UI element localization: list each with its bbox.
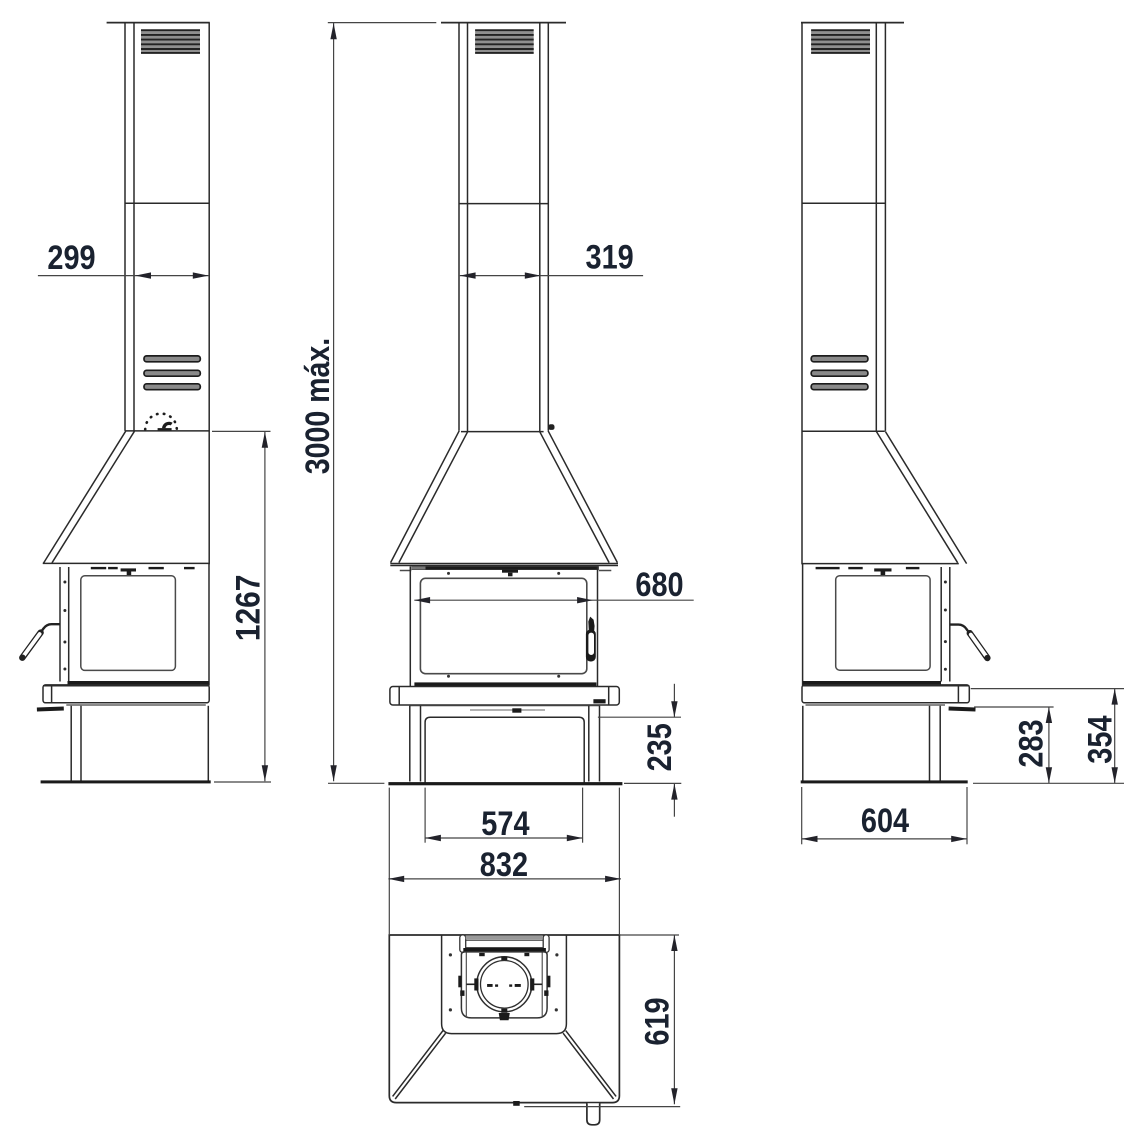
svg-text:354: 354: [1080, 715, 1119, 764]
svg-text:235: 235: [640, 723, 679, 771]
svg-text:319: 319: [585, 237, 633, 276]
svg-text:1267: 1267: [229, 575, 267, 642]
svg-text:299: 299: [47, 238, 95, 277]
svg-text:574: 574: [481, 804, 530, 843]
svg-text:619: 619: [637, 997, 676, 1045]
svg-text:283: 283: [1011, 719, 1050, 767]
svg-text:604: 604: [861, 801, 910, 840]
svg-text:832: 832: [480, 845, 528, 884]
svg-text:680: 680: [635, 565, 683, 604]
svg-text:3000 máx.: 3000 máx.: [299, 338, 337, 474]
